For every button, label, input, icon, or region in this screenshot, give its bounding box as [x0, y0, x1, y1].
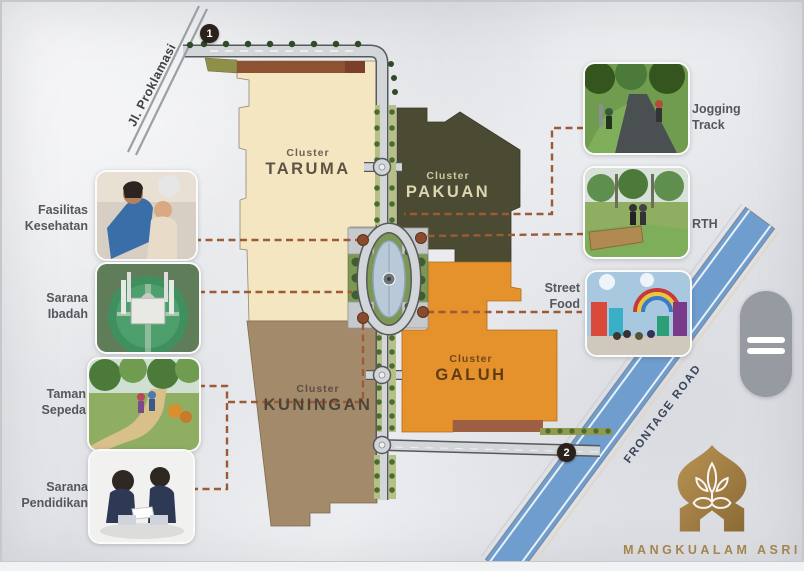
cluster-pakuan-prefix: Cluster [393, 170, 503, 182]
cluster-kuningan-area [247, 321, 377, 526]
entrance-marker-2: 2 [557, 443, 576, 462]
cluster-kuningan-prefix: Cluster [262, 383, 374, 395]
commercial-strip-galuh [453, 420, 543, 432]
olive-strip [205, 58, 237, 73]
label-fasilitas-kesehatan: Fasilitas Kesehatan [10, 202, 88, 235]
label-taman-sepeda: Taman Sepeda [12, 386, 86, 419]
cluster-taruma-label: Cluster TARUMA [253, 147, 363, 179]
label-street-food: Street Food [524, 280, 580, 313]
label-sarana-pendidikan: Sarana Pendidikan [2, 479, 88, 512]
label-sarana-ibadah: Sarana Ibadah [10, 290, 88, 323]
cluster-galuh-name: GALUH [416, 366, 526, 385]
gunungan-icon [666, 443, 758, 539]
photo-fasilitas-kesehatan [95, 170, 198, 261]
photo-taman-sepeda [87, 357, 201, 452]
cluster-pakuan-label: Cluster PAKUAN [393, 170, 503, 202]
jl-proklamasi-road [128, 6, 207, 155]
brand-logo: MANGKUALAM ASRI [622, 443, 802, 557]
commercial-strip-top-dark [345, 61, 365, 73]
cluster-taruma-name: TARUMA [253, 160, 363, 179]
label-jogging-track: Jogging Track [692, 101, 756, 134]
photo-sarana-pendidikan [88, 449, 195, 544]
drag-handle-bar [747, 337, 785, 343]
photo-sarana-ibadah [95, 262, 201, 354]
photo-jogging-track [583, 62, 690, 155]
brand-wordmark: MANGKUALAM ASRI [622, 543, 802, 557]
cluster-taruma-prefix: Cluster [253, 147, 363, 159]
cluster-pakuan-name: PAKUAN [393, 183, 503, 202]
label-rth: RTH [692, 216, 752, 232]
cluster-kuningan-name: KUNINGAN [262, 396, 374, 415]
entrance-marker-1: 1 [200, 24, 219, 43]
drag-handle[interactable] [740, 291, 792, 397]
paper-bottom-edge [0, 561, 804, 571]
cluster-kuningan-label: Cluster KUNINGAN [262, 383, 374, 415]
cluster-galuh-label: Cluster GALUH [416, 353, 526, 385]
cluster-galuh-prefix: Cluster [416, 353, 526, 365]
photo-street-food [585, 270, 692, 357]
drag-handle-bar [747, 348, 785, 354]
photo-rth [583, 166, 690, 259]
site-plan: Jl. Proklamasi FRONTAGE ROAD Cluster TAR… [0, 0, 804, 571]
